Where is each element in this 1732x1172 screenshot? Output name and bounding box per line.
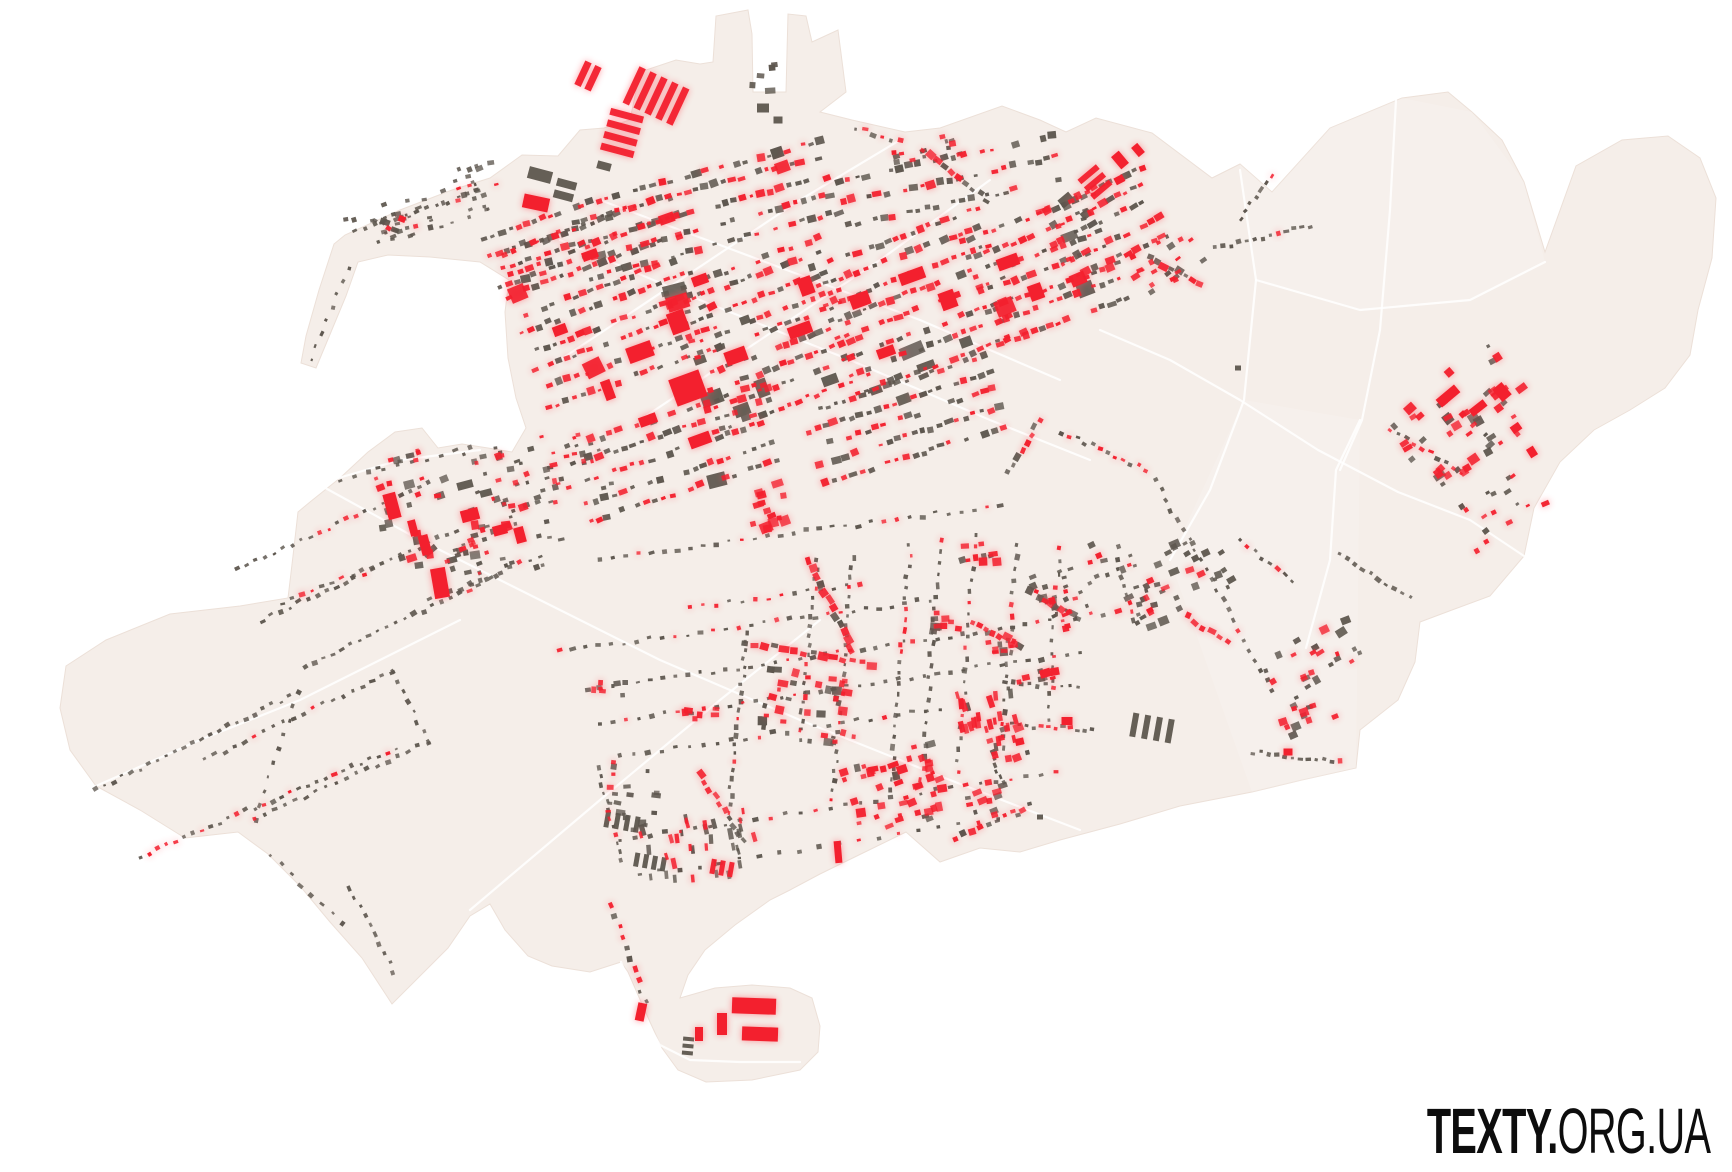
damaged-building	[1062, 625, 1070, 632]
damaged-building	[740, 539, 744, 541]
damaged-building	[937, 784, 948, 793]
building-footprint	[964, 691, 967, 694]
building-footprint	[660, 675, 666, 680]
damaged-building	[753, 597, 757, 602]
building-footprint	[1022, 622, 1027, 626]
building-footprint	[811, 650, 817, 655]
damaged-building	[790, 647, 798, 654]
building-footprint	[889, 168, 893, 172]
building-footprint	[497, 285, 502, 290]
building-footprint	[866, 194, 871, 199]
building-footprint	[414, 562, 423, 570]
damaged-building	[711, 629, 715, 632]
damaged-building	[711, 712, 719, 717]
building-footprint	[847, 595, 850, 599]
damaged-building	[769, 817, 773, 821]
building-footprint	[734, 751, 737, 754]
building-footprint	[813, 725, 817, 727]
damaged-building	[910, 554, 913, 558]
building-footprint	[1047, 691, 1051, 696]
logo-text-regular: ORG.UA	[1557, 1095, 1710, 1167]
building-footprint	[1044, 682, 1048, 685]
building-footprint	[244, 563, 249, 568]
building-footprint	[651, 811, 657, 815]
building-footprint	[683, 469, 690, 475]
damaged-building	[880, 135, 884, 138]
building-footprint	[716, 742, 720, 746]
damaged-building	[1010, 614, 1015, 620]
building-footprint	[807, 739, 812, 744]
damaged-building	[692, 716, 697, 721]
building-footprint	[618, 839, 621, 842]
building-footprint	[811, 605, 814, 610]
damaged-building	[756, 153, 765, 162]
building-footprint	[959, 736, 962, 740]
damaged-building	[910, 639, 915, 643]
damaged-building	[658, 178, 666, 186]
building-footprint	[1023, 774, 1028, 778]
building-footprint	[880, 214, 889, 221]
damaged-building	[474, 461, 478, 466]
building-footprint	[926, 675, 930, 679]
building-footprint	[836, 760, 838, 763]
building-footprint	[379, 524, 387, 531]
building-footprint	[852, 555, 856, 561]
building-footprint	[1115, 557, 1120, 563]
building-footprint	[956, 822, 960, 825]
building-footprint	[845, 604, 850, 609]
building-footprint	[843, 802, 848, 805]
building-footprint	[487, 160, 494, 166]
building-footprint	[1010, 591, 1014, 595]
building-footprint	[927, 426, 934, 433]
damaged-building	[898, 642, 902, 647]
building-footprint	[835, 730, 840, 734]
building-footprint	[727, 705, 732, 709]
building-footprint	[709, 834, 714, 844]
damaged-building	[500, 453, 505, 458]
building-footprint	[932, 607, 936, 611]
building-footprint	[728, 802, 732, 806]
building-footprint	[893, 724, 896, 727]
building-footprint	[738, 857, 741, 860]
damaged-building	[780, 492, 787, 499]
damaged-building	[676, 710, 680, 713]
building-footprint	[1291, 757, 1294, 760]
building-footprint	[967, 612, 969, 615]
building-footprint	[920, 515, 926, 520]
building-footprint	[381, 202, 388, 208]
building-footprint	[916, 829, 920, 833]
building-footprint	[626, 956, 632, 963]
building-footprint	[814, 558, 818, 563]
building-footprint	[816, 844, 822, 850]
building-footprint	[844, 684, 849, 686]
building-footprint	[1035, 159, 1043, 165]
damaged-building	[821, 733, 829, 739]
damaged-building	[607, 785, 614, 790]
building-footprint	[906, 210, 912, 214]
damaged-building	[891, 150, 896, 155]
building-footprint	[1060, 685, 1063, 687]
building-footprint	[870, 682, 874, 686]
building-footprint	[927, 651, 931, 657]
building-footprint	[929, 600, 932, 603]
damaged-building	[838, 706, 848, 716]
building-footprint	[890, 744, 895, 751]
damaged-building	[386, 480, 392, 486]
building-footprint	[893, 756, 897, 760]
damaged-building	[717, 1013, 727, 1035]
map-canvas: TEXTY.ORG.UA	[0, 0, 1732, 1172]
building-footprint	[456, 167, 461, 172]
building-footprint	[933, 595, 938, 599]
building-footprint	[1259, 750, 1263, 753]
damaged-building	[626, 244, 633, 251]
building-footprint	[777, 850, 781, 855]
building-footprint	[936, 825, 940, 829]
damaged-building	[979, 557, 988, 566]
damaged-building	[682, 708, 689, 716]
building-footprint	[994, 780, 999, 784]
building-footprint	[923, 639, 927, 642]
building-footprint	[660, 750, 664, 754]
building-footprint	[1002, 709, 1008, 716]
building-footprint	[730, 776, 734, 782]
building-footprint	[727, 539, 730, 541]
building-footprint	[1050, 652, 1053, 655]
damaged-building	[933, 623, 940, 628]
building-footprint	[939, 549, 942, 554]
damaged-building	[598, 680, 603, 686]
building-footprint	[1082, 729, 1087, 733]
damaged-building	[778, 645, 789, 653]
damaged-building	[736, 717, 738, 720]
damaged-building	[957, 770, 961, 774]
building-footprint	[762, 620, 765, 623]
damaged-building	[673, 635, 676, 638]
damaged-building	[624, 718, 628, 722]
building-footprint	[1090, 727, 1095, 731]
building-footprint	[966, 623, 969, 628]
building-footprint	[366, 469, 371, 474]
damaged-building	[815, 681, 823, 688]
damaged-building	[903, 189, 907, 193]
building-footprint	[646, 769, 650, 773]
building-footprint	[897, 692, 899, 697]
building-footprint	[1013, 660, 1017, 663]
building-footprint	[405, 198, 410, 202]
building-footprint	[931, 617, 935, 622]
building-footprint	[728, 737, 733, 742]
damaged-building	[636, 551, 640, 554]
building-footprint	[1329, 760, 1334, 764]
building-footprint	[507, 466, 515, 473]
building-footprint	[1261, 237, 1266, 242]
damaged-building	[611, 760, 616, 765]
building-footprint	[585, 687, 591, 692]
building-footprint	[914, 597, 919, 602]
damaged-building	[832, 740, 837, 744]
damaged-building	[803, 694, 808, 700]
damaged-building	[815, 586, 818, 590]
building-footprint	[626, 792, 634, 797]
damaged-building	[780, 719, 786, 724]
building-footprint	[405, 226, 410, 230]
building-footprint	[598, 722, 602, 726]
damaged-building	[828, 654, 838, 661]
building-footprint	[673, 875, 677, 883]
building-footprint	[701, 743, 706, 748]
building-footprint	[643, 823, 648, 828]
damaged-building	[1001, 649, 1008, 653]
building-footprint	[688, 547, 693, 551]
building-footprint	[613, 680, 621, 686]
damaged-building	[1005, 755, 1012, 763]
building-footprint	[1058, 572, 1060, 576]
damaged-building	[841, 691, 846, 696]
building-footprint	[1005, 661, 1008, 667]
building-footprint	[646, 845, 651, 855]
building-footprint	[896, 713, 900, 717]
building-footprint	[803, 527, 808, 532]
damaged-building	[1054, 727, 1058, 731]
building-footprint	[843, 525, 847, 527]
damaged-building	[1051, 686, 1056, 691]
building-footprint	[922, 155, 926, 159]
damaged-building	[1062, 717, 1073, 725]
building-footprint	[967, 194, 975, 201]
damaged-building	[1054, 770, 1059, 773]
damaged-building	[697, 711, 703, 718]
building-footprint	[1213, 245, 1217, 249]
building-footprint	[1009, 160, 1017, 168]
building-footprint	[960, 631, 965, 636]
building-footprint	[792, 591, 797, 596]
damaged-building	[1050, 667, 1060, 676]
damaged-building	[845, 177, 850, 182]
building-footprint	[774, 117, 783, 124]
building-footprint	[960, 511, 964, 514]
building-footprint	[859, 801, 862, 805]
damaged-building	[899, 152, 904, 156]
building-footprint	[664, 870, 668, 879]
building-footprint	[465, 174, 471, 179]
building-footprint	[816, 526, 822, 530]
building-footprint	[1047, 705, 1050, 709]
building-footprint	[733, 742, 736, 746]
damaged-building	[553, 500, 558, 505]
building-footprint	[799, 812, 803, 815]
building-footprint	[888, 787, 892, 792]
damaged-building	[1057, 546, 1062, 551]
building-footprint	[1068, 684, 1071, 687]
building-footprint	[1011, 679, 1016, 685]
damaged-building	[949, 140, 957, 147]
damaged-building	[1270, 174, 1275, 179]
building-footprint	[1298, 757, 1304, 760]
building-footprint	[757, 104, 769, 113]
damaged-building	[164, 842, 168, 846]
damaged-building	[572, 452, 577, 456]
building-footprint	[1051, 625, 1053, 629]
building-footprint	[730, 197, 737, 203]
building-footprint	[1235, 366, 1241, 371]
damaged-building	[955, 626, 962, 632]
building-footprint	[925, 204, 931, 209]
building-footprint	[924, 743, 929, 748]
damaged-building	[990, 149, 994, 152]
building-footprint	[903, 596, 906, 600]
building-footprint	[331, 305, 336, 310]
building-footprint	[1305, 757, 1311, 761]
building-footprint	[832, 769, 835, 773]
building-footprint	[253, 558, 258, 562]
damaged-building	[978, 541, 984, 546]
damaged-building	[992, 646, 999, 654]
damaged-building	[651, 260, 658, 265]
building-footprint	[1076, 685, 1080, 688]
building-footprint	[1078, 651, 1082, 654]
damaged-building	[614, 208, 620, 213]
building-footprint	[909, 184, 919, 192]
damaged-building	[793, 200, 798, 205]
building-footprint	[849, 565, 853, 570]
damaged-building	[829, 798, 832, 801]
damaged-building	[767, 189, 774, 196]
building-footprint	[648, 678, 653, 681]
building-footprint	[662, 829, 668, 834]
damaged-building	[924, 808, 934, 816]
building-footprint	[883, 679, 887, 683]
damaged-building	[786, 658, 789, 661]
building-footprint	[632, 835, 638, 840]
building-footprint	[685, 672, 690, 677]
damaged-building	[1284, 749, 1293, 756]
damaged-building	[922, 766, 928, 771]
building-footprint	[757, 73, 765, 79]
building-footprint	[888, 795, 894, 800]
damaged-building	[688, 844, 692, 851]
building-footprint	[1002, 699, 1005, 702]
building-footprint	[1002, 745, 1005, 750]
building-footprint	[623, 554, 628, 558]
building-footprint	[1048, 618, 1051, 620]
building-footprint	[734, 724, 739, 730]
building-footprint	[1037, 815, 1043, 820]
building-footprint	[975, 533, 978, 537]
damaged-building	[1016, 679, 1021, 684]
building-footprint	[1264, 180, 1269, 185]
building-footprint	[683, 228, 691, 235]
building-footprint	[846, 614, 849, 618]
building-footprint	[1028, 682, 1032, 685]
building-footprint	[138, 855, 142, 859]
building-footprint	[897, 681, 901, 686]
damaged-building	[985, 640, 991, 645]
building-footprint	[1055, 612, 1058, 616]
building-footprint	[673, 674, 677, 677]
damaged-building	[575, 433, 580, 438]
building-footprint	[893, 159, 900, 165]
building-footprint	[1229, 244, 1233, 248]
damaged-building	[742, 1026, 778, 1041]
damaged-building	[801, 142, 806, 146]
building-footprint	[972, 509, 977, 513]
damaged-building	[1052, 655, 1056, 658]
building-footprint	[677, 868, 682, 873]
damaged-building	[804, 662, 807, 666]
damaged-building	[1000, 722, 1003, 726]
building-footprint	[897, 671, 900, 675]
building-footprint	[854, 128, 857, 131]
building-footprint	[1220, 243, 1226, 248]
damaged-building	[1046, 725, 1051, 728]
building-footprint	[469, 550, 480, 559]
building-footprint	[907, 543, 910, 547]
building-footprint	[749, 624, 754, 627]
building-footprint	[623, 784, 631, 788]
damaged-building	[704, 843, 708, 851]
building-footprint	[758, 716, 767, 725]
building-footprint	[858, 684, 861, 687]
damaged-building	[856, 808, 867, 818]
building-footprint	[965, 656, 969, 662]
building-footprint	[864, 606, 868, 609]
damaged-building	[993, 691, 998, 701]
damaged-building	[611, 772, 615, 775]
building-footprint	[939, 708, 942, 711]
building-footprint	[351, 217, 357, 223]
building-footprint	[938, 561, 942, 565]
building-footprint	[828, 807, 833, 811]
building-footprint	[812, 616, 818, 620]
building-footprint	[778, 534, 784, 538]
damaged-building	[838, 721, 840, 724]
damaged-building	[1053, 585, 1058, 590]
building-footprint	[698, 670, 701, 674]
damaged-building	[1068, 725, 1074, 729]
building-footprint	[662, 549, 667, 554]
building-footprint	[1122, 584, 1126, 588]
building-footprint	[612, 792, 618, 796]
building-footprint	[948, 636, 953, 640]
damaged-building	[985, 505, 989, 508]
building-footprint	[948, 670, 953, 675]
building-footprint	[1047, 131, 1056, 139]
damaged-building	[777, 515, 782, 520]
damaged-building	[960, 714, 964, 717]
building-footprint	[733, 733, 738, 739]
building-footprint	[1269, 233, 1272, 237]
building-footprint	[909, 710, 915, 713]
building-footprint	[688, 745, 691, 748]
building-footprint	[611, 684, 614, 688]
damaged-building	[605, 810, 610, 813]
damaged-building	[805, 675, 811, 679]
damaged-building	[701, 603, 705, 606]
building-footprint	[936, 582, 940, 589]
damaged-building	[564, 454, 570, 458]
damaged-building	[961, 543, 969, 549]
damaged-building	[714, 604, 718, 608]
damaged-building	[764, 714, 769, 718]
building-footprint	[1050, 639, 1054, 643]
building-footprint	[832, 778, 838, 784]
damaged-building	[173, 840, 179, 845]
damaged-building	[940, 623, 947, 629]
damaged-building	[963, 646, 966, 650]
